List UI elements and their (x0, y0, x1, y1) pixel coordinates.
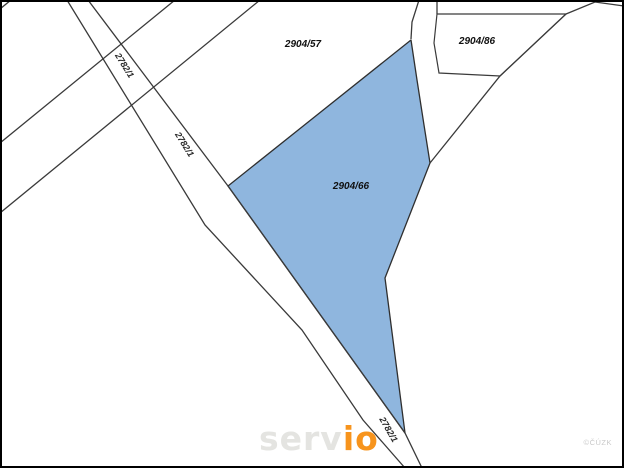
cross-road-lower-line (0, 0, 260, 213)
parcel-label-2904-57: 2904/57 (284, 39, 322, 50)
map-highlight-layer (228, 40, 430, 433)
cadastral-map[interactable]: 2904/572904/862904/662782/12782/12782/1 … (0, 0, 624, 468)
map-svg[interactable]: 2904/572904/862904/662782/12782/12782/1 (0, 0, 624, 468)
servio-logo: servio (259, 422, 379, 455)
strip-left-edge-line (411, 0, 419, 39)
highlighted-parcel-2904-66[interactable] (228, 40, 430, 433)
parcel-label-2904-66: 2904/66 (332, 181, 370, 192)
logo-text-serv: serv (259, 419, 343, 458)
road-label-2782-1: 2782/1 (112, 50, 136, 79)
logo-text-io: io (343, 419, 379, 458)
parcel-2904-86[interactable] (434, 14, 566, 76)
road-label-2782-1: 2782/1 (172, 129, 196, 158)
map-parcels-layer (434, 14, 566, 76)
ne-boundary-line (566, 2, 624, 14)
copyright-watermark: ©ČÚZK (584, 438, 612, 447)
parcel-label-2904-86: 2904/86 (458, 36, 496, 47)
cross-road-upper-line (0, 0, 175, 143)
